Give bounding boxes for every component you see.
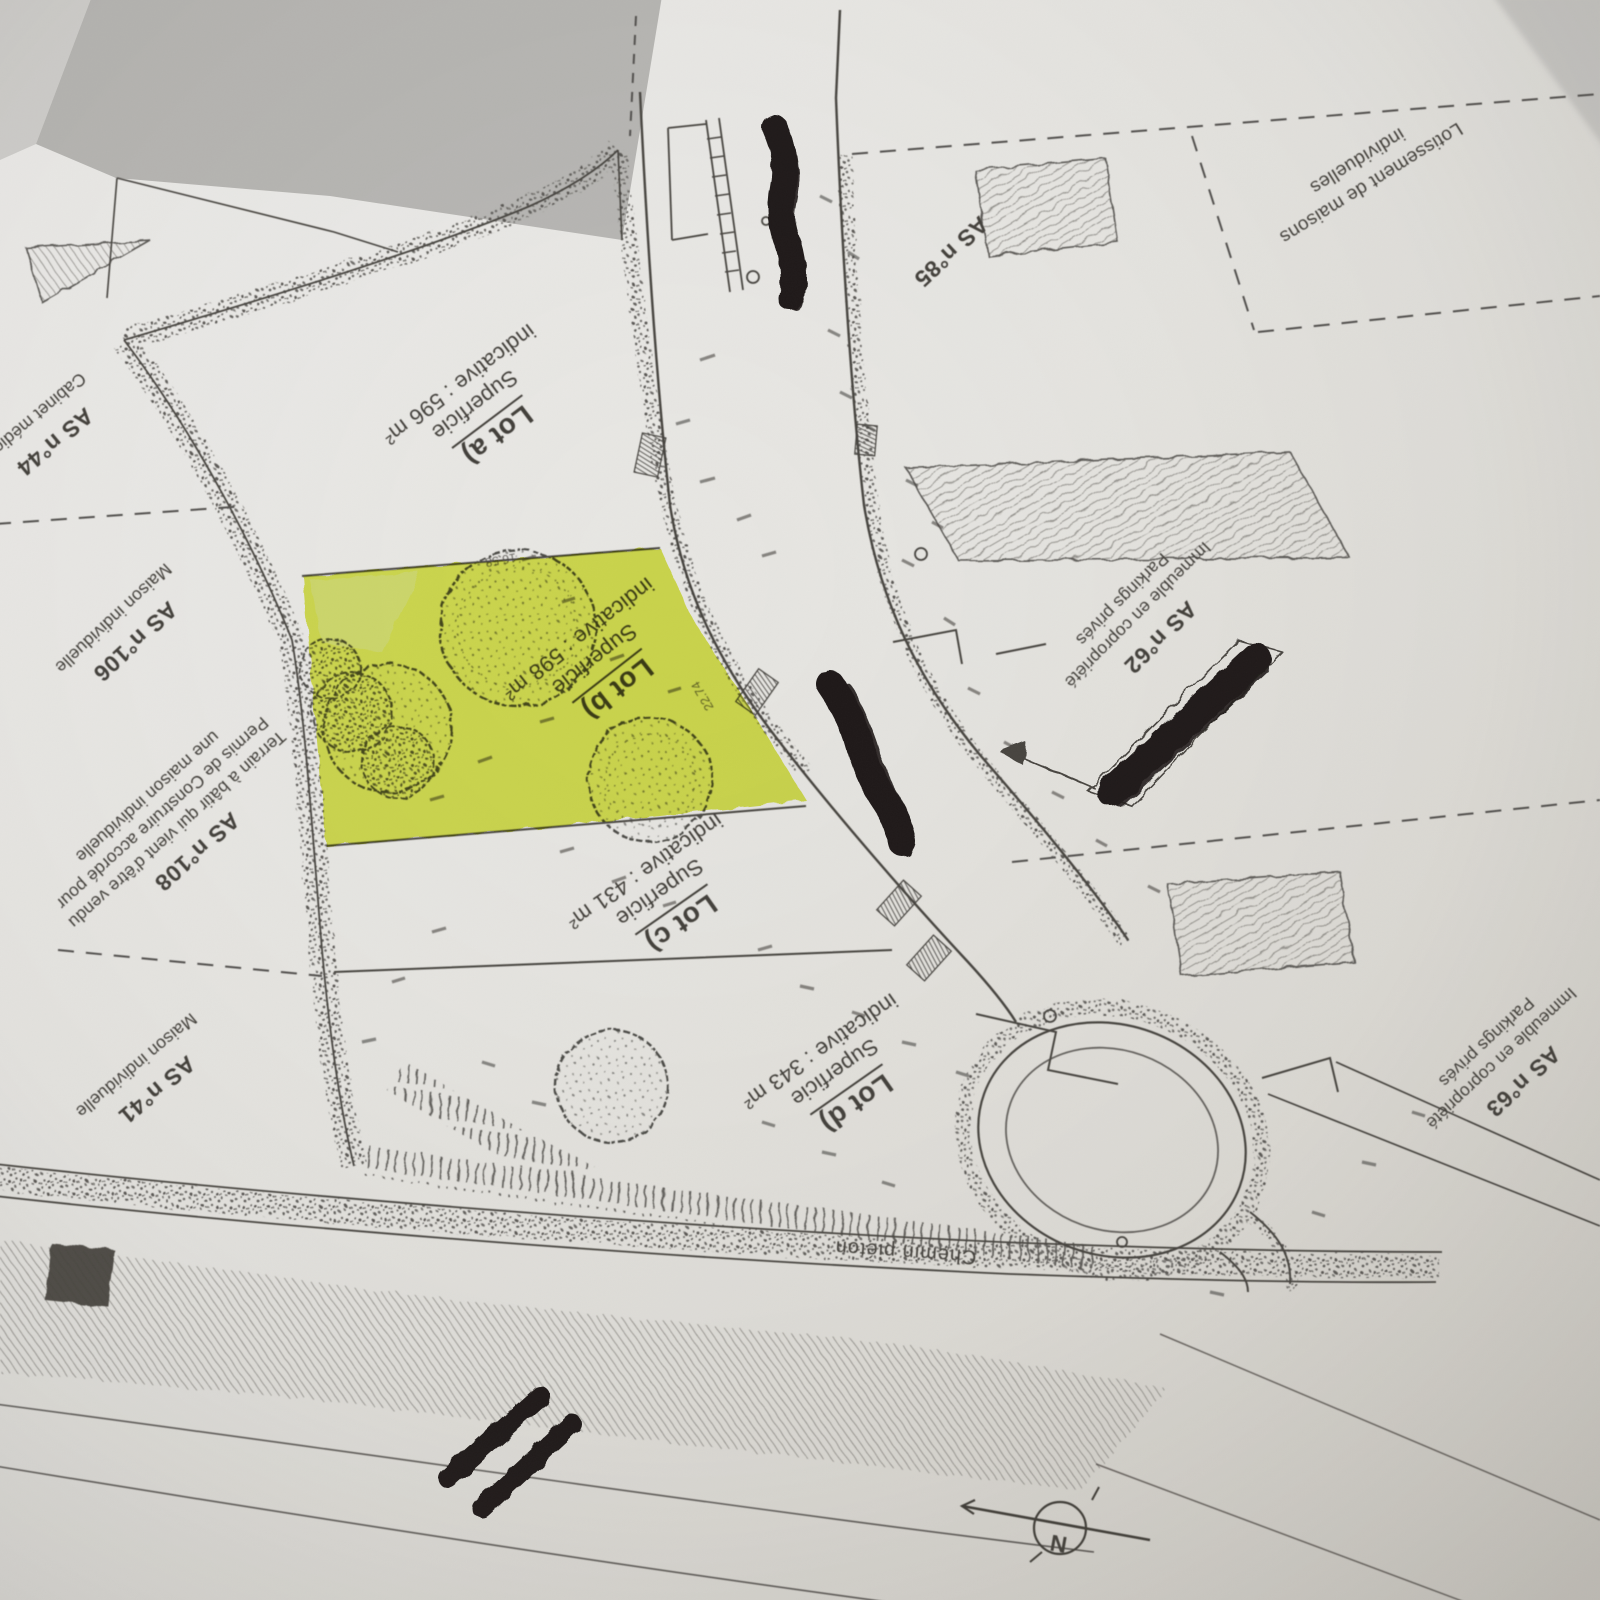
site-plan-photo: N Lot a) Superficie indicative : 596 m² …	[0, 0, 1600, 1600]
photo-of-site-plan: N Lot a) Superficie indicative : 596 m² …	[0, 0, 1600, 1600]
photo-vignette	[0, 0, 1600, 1600]
